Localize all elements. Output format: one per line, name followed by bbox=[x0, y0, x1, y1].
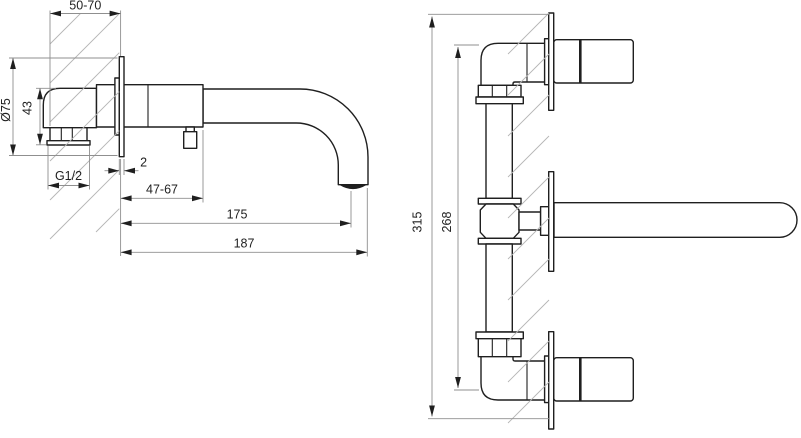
dimension-label-wall-to-body: 47-67 bbox=[146, 183, 178, 197]
dim-rosette-thickness: 2 bbox=[105, 156, 148, 176]
mixer-tee bbox=[480, 204, 519, 238]
handle-top bbox=[554, 40, 634, 83]
dimension-label-overall-reach: 187 bbox=[234, 237, 255, 251]
elbow-bottom bbox=[481, 357, 549, 400]
handle-bottom bbox=[554, 358, 634, 401]
spout-front bbox=[554, 203, 797, 238]
dimension-label-spout-reach: 175 bbox=[227, 208, 248, 222]
wall-rosette bbox=[119, 57, 124, 157]
wall-plate-top bbox=[549, 13, 554, 110]
handle-lever-neck bbox=[186, 127, 194, 132]
dimension-label-body-height: 43 bbox=[21, 101, 35, 115]
faucet-technical-drawing: 50-70 Ø75 43 G1/2 2 bbox=[0, 0, 801, 438]
wall-plate-middle bbox=[549, 172, 554, 272]
dimension-label-install-depth: 50-70 bbox=[69, 0, 101, 13]
spout-collar bbox=[541, 207, 550, 236]
aerator bbox=[340, 185, 366, 189]
spout-nipple bbox=[519, 212, 541, 230]
dimension-label-connection-span: 268 bbox=[440, 212, 454, 233]
dim-connection-span: 268 bbox=[440, 45, 479, 390]
elbow-fitting bbox=[43, 88, 96, 127]
technical-drawing-page: 50-70 Ø75 43 G1/2 2 bbox=[0, 0, 801, 438]
dim-thread: G1/2 bbox=[48, 146, 90, 190]
side-view-faucet bbox=[43, 57, 368, 189]
tee-collar-bottom bbox=[478, 238, 521, 244]
spout bbox=[203, 89, 368, 185]
riser-pipe-top bbox=[486, 104, 512, 199]
hex-nut-bottom bbox=[478, 339, 521, 357]
riser-pipe-bottom bbox=[486, 244, 512, 332]
dimension-label-thread: G1/2 bbox=[55, 169, 82, 183]
dimension-label-overall-height: 315 bbox=[411, 212, 425, 233]
side-view: 50-70 Ø75 43 G1/2 2 bbox=[0, 0, 368, 257]
front-view-faucet bbox=[476, 13, 797, 429]
hex-nut-top bbox=[478, 85, 521, 97]
handle-lever bbox=[184, 132, 197, 149]
wall-plate-bottom bbox=[549, 332, 554, 429]
front-view: 315 268 bbox=[411, 13, 798, 429]
mixer-body bbox=[97, 85, 204, 127]
tee-collar-top bbox=[478, 198, 521, 204]
collar-top bbox=[476, 97, 523, 104]
dimension-label-rosette-diameter: Ø75 bbox=[0, 98, 13, 122]
dimension-label-rosette-thickness: 2 bbox=[140, 156, 147, 170]
